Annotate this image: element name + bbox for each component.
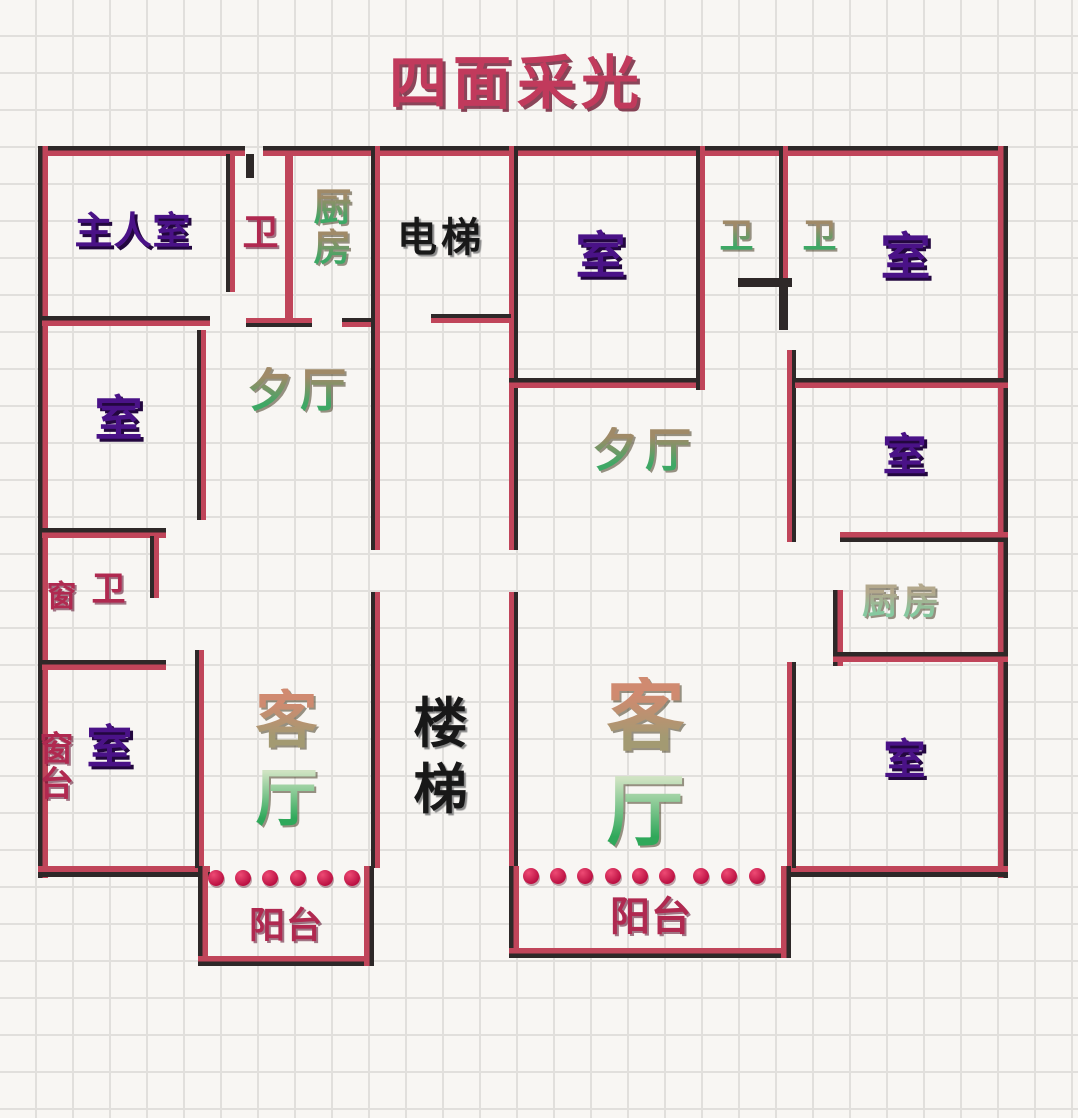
stairs-char-2: 梯	[414, 762, 469, 818]
dining-right-char-2: 厅	[645, 427, 692, 475]
wall-master-bottom	[42, 316, 210, 326]
room-label-bath-top-right-1: 卫	[720, 219, 755, 254]
wall-outer-bottom-right	[788, 866, 1008, 877]
room-label-room-top-right: 室	[881, 231, 932, 283]
window-dot	[632, 868, 648, 884]
wall-room-mid-top-bottom	[509, 378, 705, 388]
label-window-sill: 窗 台	[40, 733, 75, 804]
room-label-bath-left-small: 卫	[92, 572, 127, 607]
window-dot	[235, 870, 251, 886]
window-dot	[523, 868, 539, 884]
wall-shaft-left-upper	[371, 146, 380, 550]
kitchen-left-char-1: 厨	[313, 188, 352, 228]
window-dot	[659, 868, 675, 884]
living-right-char-2: 厅	[606, 772, 685, 853]
window-dot	[317, 870, 333, 886]
room-label-stairs: 楼 梯	[414, 696, 469, 818]
wall-bath-bottom-right-unit	[738, 278, 792, 287]
wall-balcony-left-left	[198, 866, 208, 966]
window-dot	[749, 868, 765, 884]
page-title: 四面采光	[389, 53, 645, 113]
wall-bath-bottom	[246, 318, 312, 327]
window-dots-left-balcony	[208, 870, 360, 886]
room-label-living-left: 客 厅	[255, 689, 318, 832]
stairs-char-1: 楼	[414, 696, 469, 752]
wall-right-column-lower	[787, 662, 796, 868]
wall-shaft-left-lower	[371, 592, 380, 868]
window-dot	[577, 868, 593, 884]
wall-shaft-right-lower	[509, 592, 518, 868]
wall-outer-bottom-left	[38, 866, 210, 877]
wall-room-top-right-bottom	[795, 378, 1008, 388]
room-label-kitchen-left: 厨 房	[313, 188, 352, 267]
wall-bath-divider-stub	[779, 284, 788, 330]
wall-shaft-right-upper	[509, 146, 518, 550]
dining-right-char-1: 夕	[592, 427, 639, 475]
window-dot	[208, 870, 224, 886]
wall-outer-right	[998, 146, 1008, 878]
room-label-bath-top-right-2: 卫	[803, 219, 838, 254]
wall-top-door-stub	[246, 154, 254, 178]
room-label-room-right-mid: 室	[883, 433, 928, 479]
floor-plan: 四面采光 主人室 卫	[0, 0, 1078, 1118]
window-sill-char-2: 台	[40, 768, 75, 803]
room-label-room-mid-top: 室	[576, 230, 627, 282]
window-dot	[721, 868, 737, 884]
living-left-char-2: 厅	[255, 767, 318, 831]
room-label-living-right: 客 厅	[606, 677, 685, 853]
window-dot	[262, 870, 278, 886]
window-dot	[550, 868, 566, 884]
room-label-elevator: 电梯	[397, 218, 485, 260]
room-label-bath-top-left: 卫	[242, 214, 279, 251]
window-dot	[693, 868, 709, 884]
room-label-room-bottom-left: 室	[87, 724, 134, 772]
dining-left-char-2: 厅	[300, 367, 347, 415]
living-right-char-1: 客	[606, 677, 685, 758]
wall-room-left-mid-right	[197, 330, 206, 520]
window-dots-right-balcony-b	[693, 868, 765, 884]
room-label-master: 主人室	[74, 212, 191, 252]
window-dot	[605, 868, 621, 884]
wall-room-left-mid-bottom	[42, 528, 166, 538]
wall-bath-divider-upper	[779, 146, 788, 280]
wall-kitchen-right-bottom	[833, 652, 1008, 662]
window-sill-char-1: 窗	[40, 733, 75, 768]
wall-kitchen-right-top	[840, 532, 1008, 542]
wall-room-bottom-left-right	[195, 650, 204, 868]
window-dot	[290, 870, 306, 886]
room-label-room-left-mid: 室	[94, 395, 143, 445]
wall-balcony-left-right	[364, 866, 374, 966]
wall-balcony-right-left	[509, 866, 519, 958]
wall-room-mid-top-right	[696, 146, 705, 390]
label-window-left: 窗	[47, 581, 78, 612]
window-dot	[344, 870, 360, 886]
wall-small-bath-bottom	[42, 660, 166, 670]
wall-balcony-right-right	[781, 866, 791, 958]
wall-balcony-left-bottom	[198, 956, 374, 966]
kitchen-right-char-1: 厨	[862, 583, 899, 620]
living-left-char-1: 客	[255, 689, 318, 753]
wall-bath-kitchen-divider	[285, 154, 293, 324]
wall-master-bath-divider	[226, 154, 235, 292]
room-label-balcony-right: 阳台	[610, 897, 692, 939]
room-label-room-bottom-right: 室	[883, 738, 926, 782]
wall-balcony-right-bottom	[509, 948, 791, 958]
room-label-dining-left: 夕 厅	[247, 367, 347, 415]
window-dots-right-balcony-a	[523, 868, 675, 884]
room-label-kitchen-right: 厨 房	[862, 583, 940, 620]
kitchen-right-char-2: 房	[903, 583, 940, 620]
dining-left-char-1: 夕	[247, 367, 294, 415]
kitchen-left-char-2: 房	[313, 228, 352, 268]
wall-outer-top-left	[38, 146, 245, 156]
room-label-balcony-left: 阳台	[249, 907, 323, 944]
room-label-dining-right: 夕 厅	[592, 427, 692, 475]
wall-small-bath-right	[150, 536, 159, 598]
wall-elevator-bottom	[431, 314, 511, 323]
